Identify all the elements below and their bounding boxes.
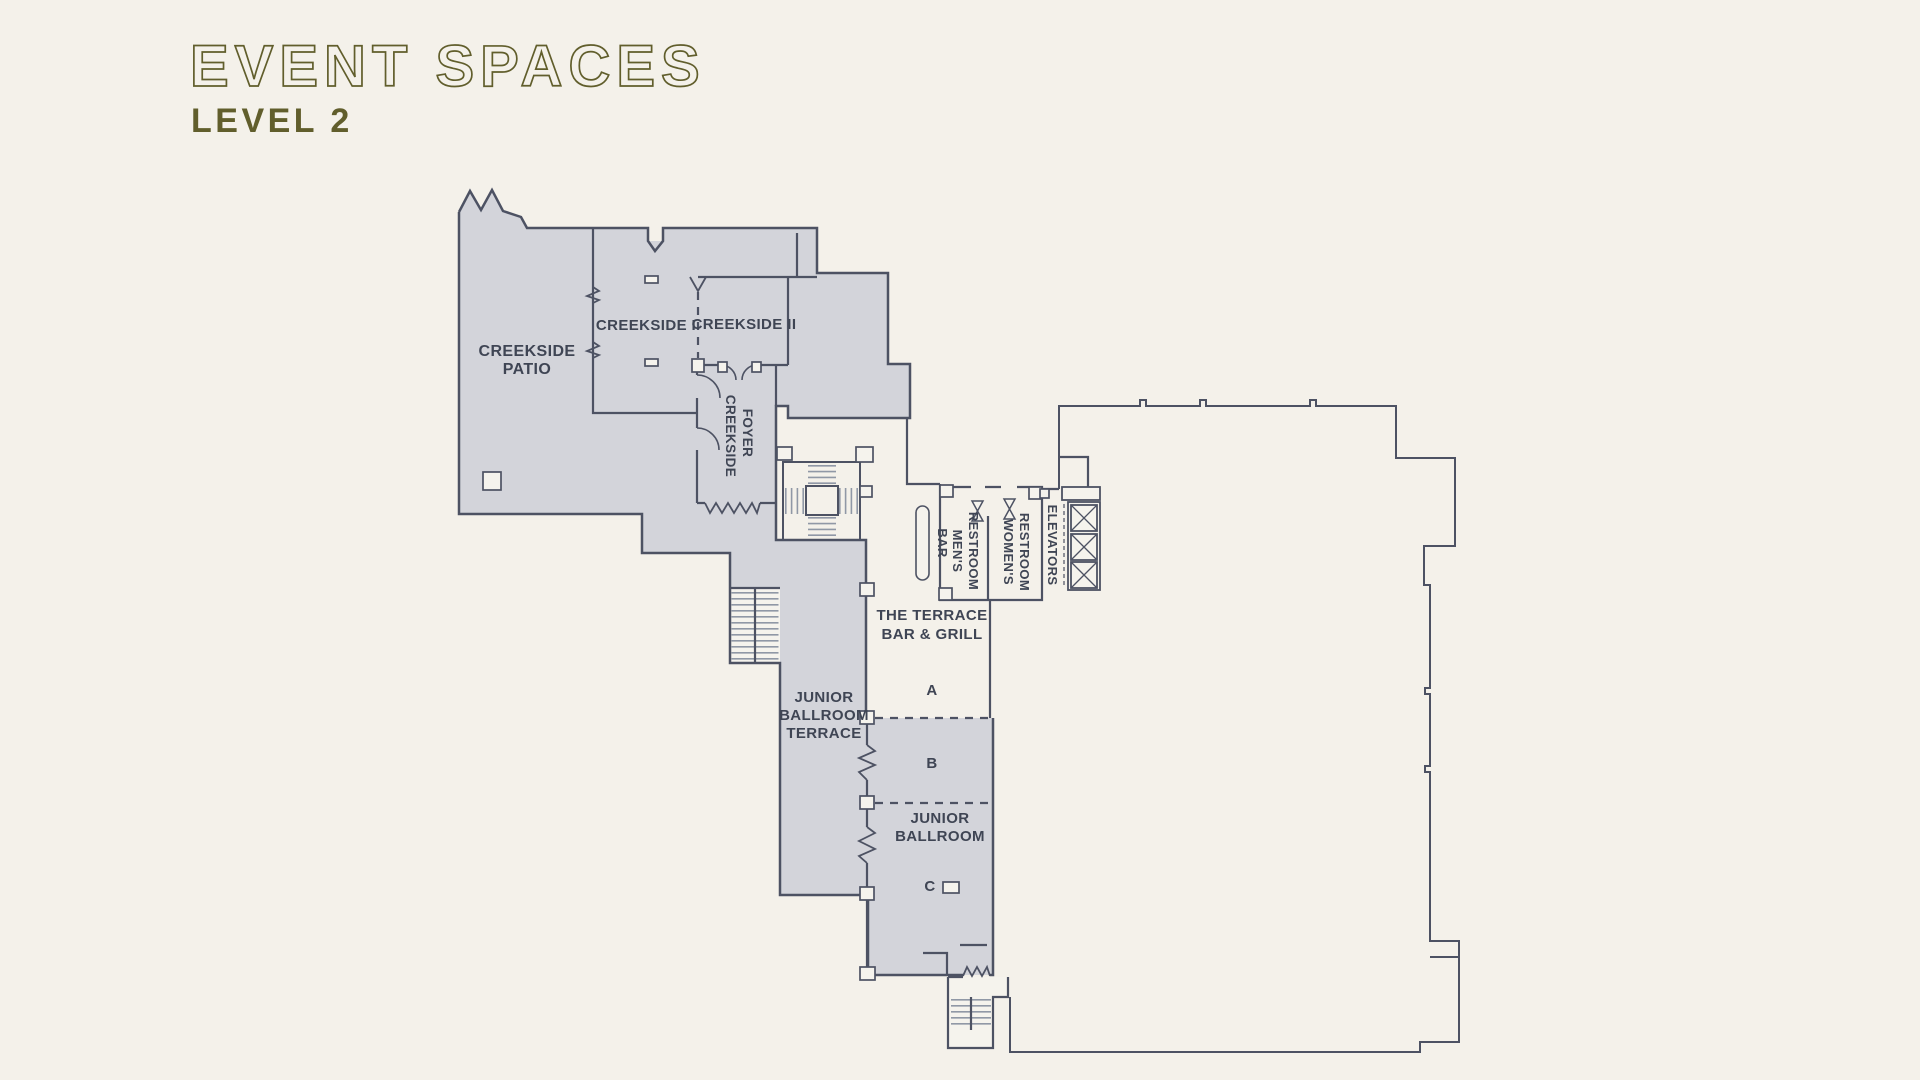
elevator-bank (1062, 487, 1100, 590)
mens-restroom-label: MEN'S (950, 530, 965, 573)
ballroom-section-b-label: B (926, 755, 937, 772)
junior-ballroom-label: JUNIOR (910, 810, 969, 827)
creekside-foyer-label: CREEKSIDE (723, 395, 738, 477)
terrace-bar-grill-label: BAR & GRILL (881, 626, 982, 643)
mens-restroom-label: RESTROOM (966, 512, 981, 590)
creekside-patio-label: PATIO (503, 361, 552, 378)
junior-ballroom-terrace-label: JUNIOR (794, 689, 853, 706)
creekside-1-label: CREEKSIDE I (596, 317, 696, 334)
ballroom-section-c-label: C (924, 878, 935, 895)
elevator-lobby-box (1062, 487, 1100, 500)
womens-restroom-label: RESTROOM (1017, 513, 1032, 591)
elevators-label: ELEVATORS (1045, 505, 1060, 586)
creekside-patio-label: CREEKSIDE (479, 343, 576, 360)
ballroom-section-a-label: A (926, 682, 937, 699)
junior-ballroom-terrace-label: TERRACE (786, 725, 861, 742)
bar-label: BAR (935, 528, 950, 558)
bar-counter (916, 506, 929, 580)
junior-ballroom-terrace-label: BALLROOM (779, 707, 869, 724)
page-subtitle: LEVEL 2 (191, 102, 353, 140)
creekside-foyer-label: FOYER (740, 409, 755, 458)
floor-plan-page: EVENT SPACES LEVEL 2 CREEKSIDE PATIO CRE… (0, 0, 1920, 1080)
creekside-2-label: CREEKSIDE II (692, 316, 797, 333)
page-title: EVENT SPACES (190, 34, 706, 99)
womens-restroom-label: WOMEN'S (1001, 519, 1016, 585)
floor-plan-svg: EVENT SPACES LEVEL 2 CREEKSIDE PATIO CRE… (0, 0, 1920, 1080)
junior-ballroom-label: BALLROOM (895, 828, 985, 845)
terrace-bar-grill-label: THE TERRACE (876, 607, 987, 624)
